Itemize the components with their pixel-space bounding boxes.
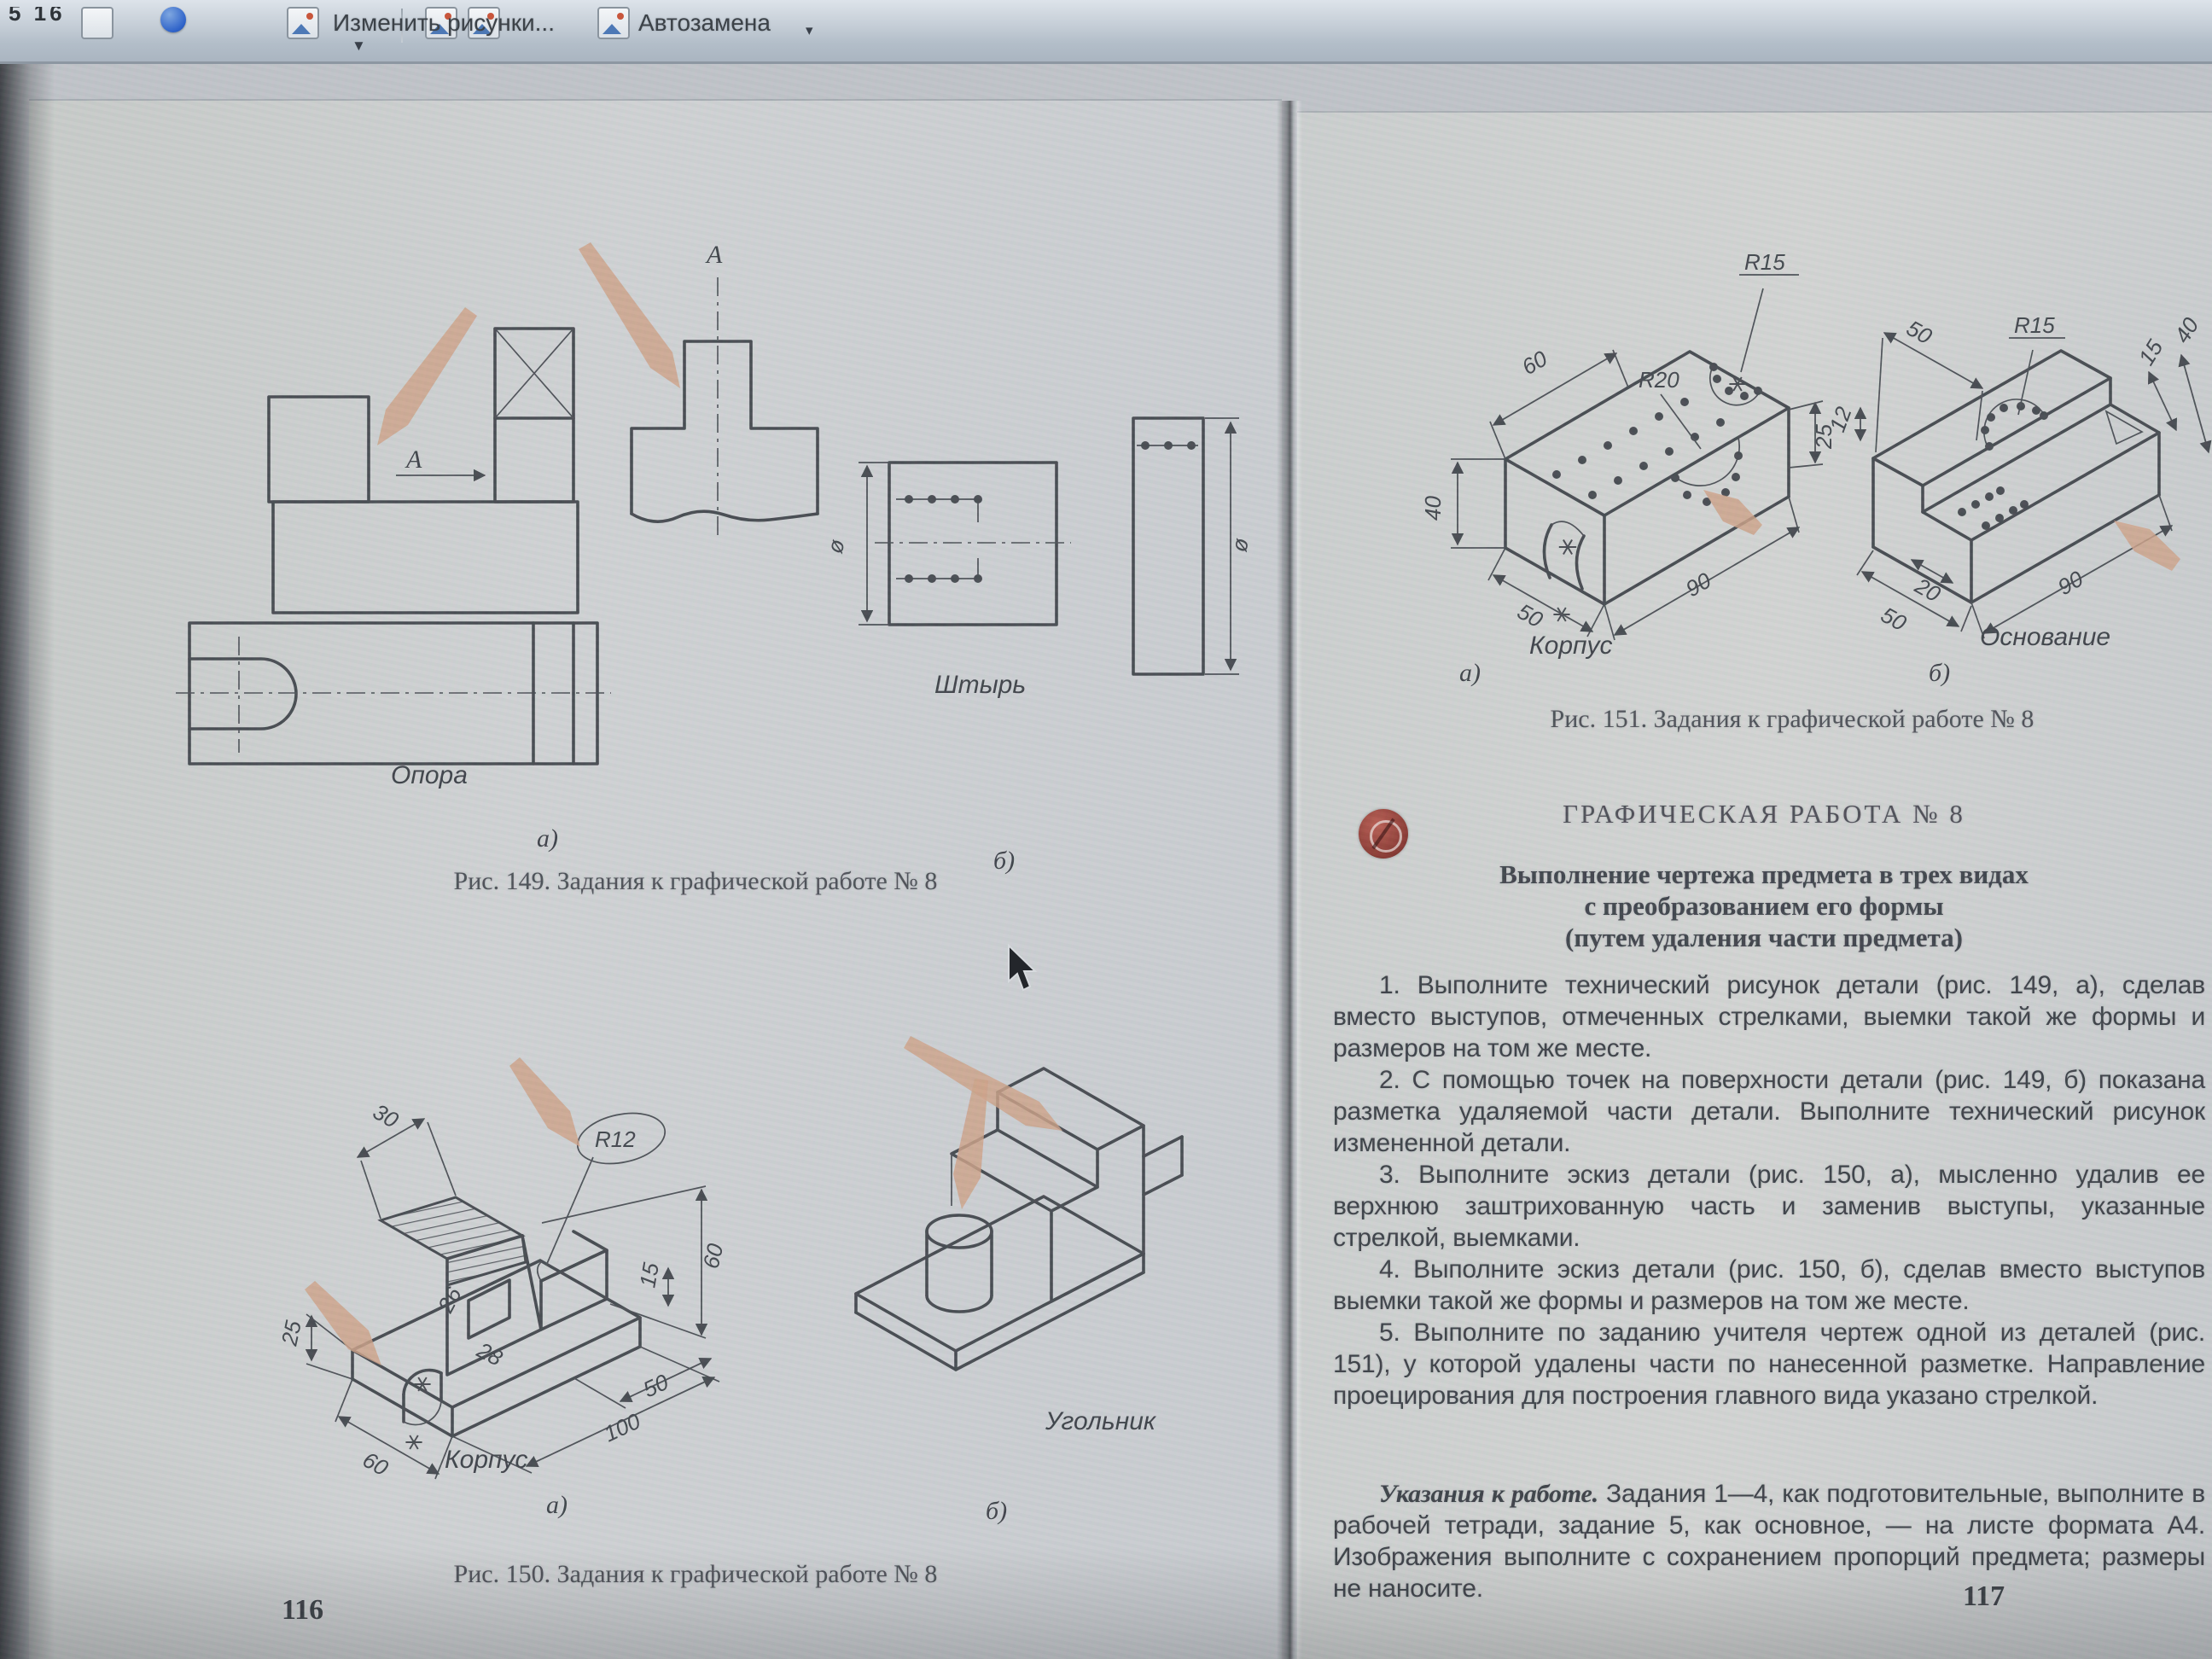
task-item: 3. Выполните эскиз детали (рис. 150, а),… [1333,1159,2205,1254]
fig151b-drawing: 50 R15 12 15 40 20 50 90 Основание [1809,229,2212,707]
book-photo: A A Опора а) [0,61,2212,1659]
blue-orb-icon [160,7,186,32]
autocorrect-icon [597,7,630,39]
task-item: 4. Выполните эскиз детали (рис. 150, б),… [1333,1254,2205,1317]
fig150b-drawing: Угольник б) [806,1028,1267,1523]
tool-icon [81,7,114,39]
svg-text:15: 15 [634,1260,664,1289]
svg-text:30: 30 [369,1098,404,1133]
page-number-116: 116 [282,1594,323,1627]
removal-arrow [579,242,680,388]
korpus150-dimensions: 30 R12 60 15 25 26 28 50 100 [276,1098,728,1481]
subtitle-line: с преобразованием его формы [1333,890,2195,922]
task-item: 2. С помощью точек на поверхности детали… [1333,1064,2205,1159]
fig149a-front-view: A [269,242,680,613]
removal-arrow [509,1057,580,1147]
svg-text:25: 25 [276,1318,306,1348]
dia-label: ø [822,536,850,556]
svg-text:28: 28 [472,1336,507,1371]
small-dropdown-icon[interactable]: ▾ [806,22,813,39]
part-name-korpus: Корпус [1529,632,1613,660]
svg-text:90: 90 [1681,567,1716,602]
fig150-caption: Рис. 150. Задания к графической работе №… [367,1560,1024,1589]
svg-text:50: 50 [639,1369,672,1403]
screen-photo: 5 16 ▼ Изменить рисунки... Автозамена ▾ [0,0,2212,1659]
svg-text:12: 12 [1824,403,1856,435]
svg-text:50: 50 [1902,315,1936,350]
fig149a-view-A: A [632,241,818,536]
svg-text:26: 26 [432,1283,467,1318]
osnovanie-dimensions: 50 R15 12 15 40 20 50 90 [1824,312,2209,638]
removal-arrow [953,1079,988,1209]
book-spine [1277,101,1302,1659]
korpus151-dimensions: 60 R15 R20 40 25 90 50 [1420,249,1837,640]
fig149a-bottom-view [176,623,611,764]
svg-text:15: 15 [2133,335,2168,370]
toolbar-tool-icon[interactable] [81,7,114,39]
task-item: 1. Выполните технический рисунок детали … [1333,969,2205,1064]
fig150a-drawing: 30 R12 60 15 25 26 28 50 100 [286,1057,798,1547]
letter-a: а) [537,824,558,853]
osnovanie-isometric [1873,351,2159,602]
letter-a: а) [546,1491,568,1519]
help-button[interactable] [160,7,186,32]
removal-arrow [377,307,477,445]
clipped-text: 5 16 [9,7,66,26]
part-name-opora: Опора [391,761,468,789]
fig149-drawing: A A Опора а) [154,213,1254,905]
part-name-shtyr: Штырь [934,671,1026,699]
clipped-text-fragment: 5 16 [9,7,66,29]
svg-text:60: 60 [1517,345,1552,380]
toolbar-options-chevron-icon[interactable]: ▼ [352,38,366,55]
fig149b-shtyr: ø ø Штырь [822,418,1254,699]
letter-b: б) [1929,659,1950,687]
part-name-ugolnik: Угольник [1045,1407,1157,1435]
svg-text:R20: R20 [1639,367,1679,393]
svg-text:60: 60 [698,1241,729,1271]
task-item: 5. Выполните по заданию учителя чертеж о… [1333,1317,2205,1412]
view-arrow-label: A [405,445,422,474]
photo-left-shadow [0,61,55,1659]
part-name-korpus: Корпус [445,1446,528,1474]
edit-pictures-button[interactable]: Изменить рисунки... [287,7,555,39]
task-list: 1. Выполните технический рисунок детали … [1333,969,2205,1412]
fig149-caption: Рис. 149. Задания к графической работе №… [367,867,1024,896]
edit-pictures-icon [287,7,319,39]
removal-arrow [305,1281,381,1365]
part-name-osnovanie: Основание [1980,623,2110,651]
svg-text:40: 40 [1420,496,1446,521]
svg-text:90: 90 [2053,565,2088,600]
notes-lead: Указания к работе. [1379,1480,1598,1508]
subtitle-line: (путем удаления части предмета) [1333,922,2195,953]
svg-text:60: 60 [358,1447,393,1481]
graphic-work-subtitle: Выполнение чертежа предмета в трех видах… [1333,859,2195,953]
edit-pictures-label: Изменить рисунки... [333,9,555,37]
graphic-work-heading: ГРАФИЧЕСКАЯ РАБОТА № 8 [1333,799,2195,829]
subtitle-line: Выполнение чертежа предмета в трех видах [1333,859,2195,890]
work-notes: Указания к работе. Задания 1—4, как подг… [1333,1478,2205,1604]
svg-text:R15: R15 [1744,249,1785,275]
letter-b: б) [986,1497,1007,1525]
view-top-label: A [705,241,723,269]
page-number-117: 117 [1963,1580,2005,1613]
autocorrect-label: Автозамена [638,9,771,37]
svg-text:40: 40 [2169,312,2204,347]
fig151a-drawing: 60 R15 R20 40 25 90 50 К [1391,220,1843,685]
autocorrect-button[interactable]: Автозамена [597,7,771,39]
svg-text:50: 50 [1877,602,1911,637]
mouse-cursor[interactable] [1005,944,1043,995]
letter-a: а) [1459,659,1481,687]
app-toolbar: 5 16 ▼ Изменить рисунки... Автозамена ▾ [0,0,2212,64]
korpus150-isometric [352,1197,640,1449]
fig151-caption: Рис. 151. Задания к графической работе №… [1511,705,2074,734]
svg-text:R15: R15 [2014,312,2055,338]
svg-text:R12: R12 [595,1126,636,1152]
